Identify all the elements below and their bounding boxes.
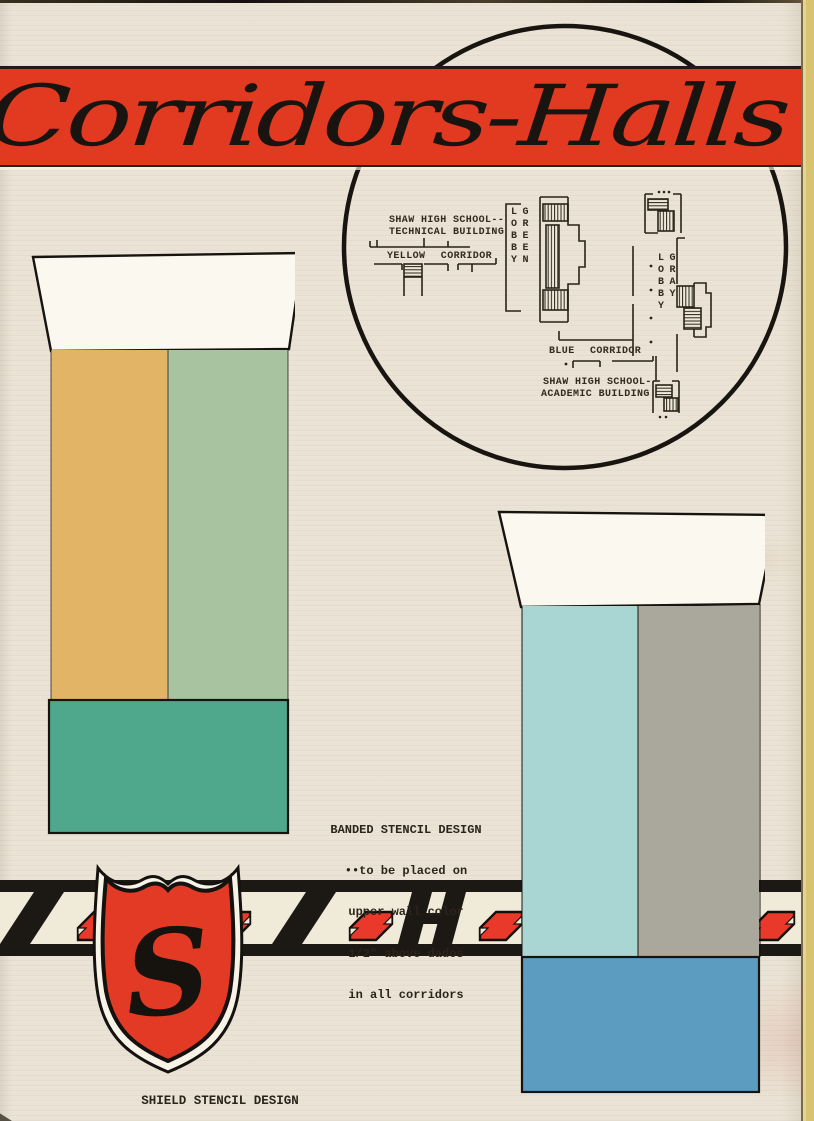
plan-label-yellow-corridor: YELLOW CORRIDOR (387, 251, 492, 263)
shield-letter: S (120, 900, 215, 1045)
right-color-sample-panel (495, 508, 765, 1096)
right-panel-upper-swatch-2 (638, 606, 759, 957)
shield-stencil-note: SHIELD STENCIL DESIGN .. to be used on s… (58, 1064, 382, 1121)
right-panel-upper-swatch-1 (522, 606, 638, 957)
banded-stencil-note: BANDED STENCIL DESIGN ••to be placed on … (318, 796, 494, 1031)
shield-icon: S (88, 856, 248, 1082)
plan-label-green-lobby: GREEN LOBBY (508, 207, 531, 319)
left-color-sample-panel (30, 250, 295, 840)
note-line: 1/2" above dados (318, 948, 494, 962)
note-line: SHIELD STENCIL DESIGN (58, 1094, 382, 1109)
left-panel-upper-swatch-2 (168, 350, 288, 700)
left-panel-cornice (33, 253, 295, 351)
plan-label-academic-building-1: SHAW HIGH SCHOOL- (543, 377, 652, 389)
note-line: upper wall color (318, 906, 494, 920)
plan-label-technical-building-1: SHAW HIGH SCHOOL-- (389, 215, 504, 227)
note-line: BANDED STENCIL DESIGN (318, 824, 494, 838)
page-title: Corridors-Halls (0, 67, 791, 165)
plan-label-technical-building-2: TECHNICAL BUILDING (389, 227, 504, 239)
right-panel-cornice (499, 512, 765, 607)
plan-label-blue-corridor: BLUE CORRIDOR (549, 346, 641, 358)
plan-label-gray-lobby: GRAY LOBBY (655, 253, 678, 363)
scanned-design-board-page: Corridors-Halls SHAW HIGH SCHOOL-- TECHN… (0, 0, 814, 1121)
note-line: in all corridors (318, 989, 494, 1003)
note-line: ••to be placed on (318, 865, 494, 879)
plan-label-academic-building-2: ACADEMIC BUILDING (541, 389, 650, 401)
left-panel-upper-swatch-1 (51, 350, 168, 700)
title-banner: Corridors-Halls (0, 66, 814, 167)
left-panel-dado-swatch (49, 700, 288, 833)
right-panel-dado-swatch (522, 957, 759, 1092)
